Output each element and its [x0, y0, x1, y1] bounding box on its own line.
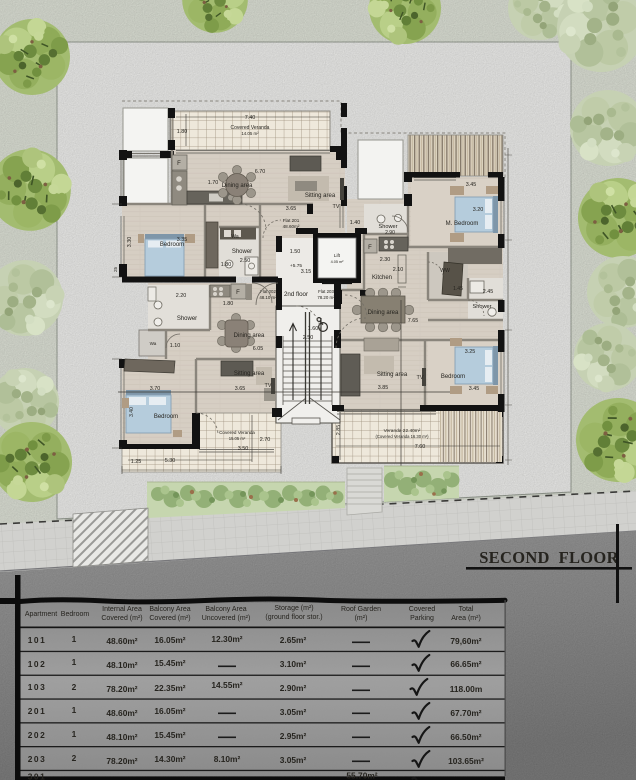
svg-text:1.60: 1.60	[308, 326, 319, 332]
svg-text:7.65: 7.65	[408, 318, 419, 324]
svg-text:6.05: 6.05	[253, 346, 264, 352]
svg-text:1: 1	[72, 657, 77, 667]
svg-text:Parking: Parking	[410, 615, 434, 622]
svg-text:1: 1	[72, 705, 77, 715]
svg-text:202: 202	[28, 730, 46, 740]
svg-text:78.20 m²: 78.20 m²	[317, 295, 335, 300]
svg-text:2: 2	[72, 682, 77, 692]
svg-text:2.70: 2.70	[260, 437, 271, 443]
svg-text:2.85: 2.85	[336, 425, 342, 436]
svg-text:48.10m²: 48.10m²	[106, 660, 137, 670]
svg-text:66.65m²: 66.65m²	[450, 659, 481, 669]
svg-text:203: 203	[28, 754, 46, 764]
svg-text:3.40: 3.40	[129, 407, 135, 417]
svg-text:1.40: 1.40	[350, 220, 361, 226]
svg-text:4.05 m²: 4.05 m²	[331, 260, 345, 264]
svg-text:3.85: 3.85	[378, 385, 389, 391]
svg-text:Shower: Shower	[177, 316, 197, 322]
svg-text:301: 301	[28, 772, 46, 780]
svg-text:66.50m²: 66.50m²	[450, 732, 481, 742]
svg-text:3.05m²: 3.05m²	[280, 707, 307, 717]
svg-text:2.90: 2.90	[385, 230, 395, 236]
svg-text:TV: TV	[417, 375, 424, 381]
svg-text:Dining area: Dining area	[368, 310, 399, 316]
svg-text:22.35m²: 22.35m²	[154, 683, 185, 693]
svg-text:1.80: 1.80	[177, 129, 188, 135]
svg-text:1.80: 1.80	[221, 262, 232, 268]
svg-text:F: F	[368, 245, 372, 251]
svg-text:102: 102	[28, 659, 46, 669]
svg-text:48.10m²: 48.10m²	[106, 732, 137, 742]
svg-text:1: 1	[72, 634, 77, 644]
svg-text:Bedroom: Bedroom	[61, 611, 90, 618]
svg-text:1.80: 1.80	[223, 301, 234, 307]
svg-text:14.55m²: 14.55m²	[211, 680, 242, 690]
svg-text:12.30m²: 12.30m²	[211, 634, 242, 644]
svg-text:14.05 m²: 14.05 m²	[241, 131, 259, 136]
svg-text:1.70: 1.70	[208, 180, 219, 186]
svg-text:Dining area: Dining area	[222, 183, 253, 189]
svg-text:101: 101	[28, 635, 46, 645]
svg-text:3.45: 3.45	[466, 182, 477, 188]
svg-text:Flat 201: Flat 201	[283, 218, 300, 223]
svg-text:2.65m²: 2.65m²	[280, 635, 307, 645]
svg-text:Balcony Area: Balcony Area	[205, 606, 246, 613]
svg-text:Covered (m²): Covered (m²)	[149, 615, 190, 622]
svg-text:F: F	[236, 290, 240, 296]
svg-text:8.10m²: 8.10m²	[214, 754, 241, 764]
svg-text:3.65: 3.65	[286, 206, 297, 212]
svg-text:Dining area: Dining area	[234, 333, 265, 339]
svg-text:2.45: 2.45	[483, 289, 494, 295]
svg-text:3.65: 3.65	[235, 386, 246, 392]
svg-text:78.20m²: 78.20m²	[106, 684, 137, 694]
svg-text:Sitting area: Sitting area	[305, 193, 336, 199]
svg-text:Total: Total	[459, 606, 474, 613]
svg-text:48.60m²: 48.60m²	[106, 708, 137, 718]
svg-text:Covered: Covered	[409, 606, 436, 613]
svg-text:1.45: 1.45	[453, 286, 463, 292]
svg-text:Bedroom: Bedroom	[154, 414, 178, 420]
svg-text:2.30: 2.30	[380, 257, 391, 263]
svg-text:2nd floor: 2nd floor	[284, 291, 308, 298]
svg-text:201: 201	[28, 706, 46, 716]
svg-text:55.70m²: 55.70m²	[346, 771, 377, 780]
svg-text:16.05m²: 16.05m²	[154, 635, 185, 645]
svg-text:Sitting area: Sitting area	[234, 371, 265, 377]
svg-text:F: F	[177, 161, 181, 167]
svg-text:2.50: 2.50	[240, 258, 251, 264]
svg-text:14.30m²: 14.30m²	[154, 754, 185, 764]
svg-text:Uncovered (m²): Uncovered (m²)	[202, 615, 251, 622]
svg-text:5.30: 5.30	[165, 458, 176, 464]
svg-text:TV: TV	[333, 204, 340, 210]
svg-text:Wa: Wa	[150, 341, 157, 346]
svg-text:Flat 203: Flat 203	[318, 289, 334, 294]
svg-text:3.50: 3.50	[238, 446, 249, 452]
svg-text:Bedroom: Bedroom	[441, 374, 465, 380]
svg-text:Apartment: Apartment	[25, 611, 57, 618]
svg-text:48.60m²: 48.60m²	[106, 636, 137, 646]
svg-text:2.95m²: 2.95m²	[280, 731, 307, 741]
svg-text:(Covered Veranda 16.30 m²): (Covered Veranda 16.30 m²)	[375, 434, 429, 439]
svg-text:3.30: 3.30	[127, 237, 133, 248]
svg-text:16.05m²: 16.05m²	[154, 706, 185, 716]
svg-text:Kitchen: Kitchen	[372, 275, 392, 281]
svg-text:Lift: Lift	[334, 253, 341, 258]
svg-text:Covered (m²): Covered (m²)	[101, 615, 142, 622]
svg-text:Internal Area: Internal Area	[102, 606, 142, 613]
svg-text:78.20m²: 78.20m²	[106, 756, 137, 766]
svg-text:Covered Veranda: Covered Veranda	[219, 430, 255, 435]
svg-text:Shower: Shower	[232, 249, 252, 255]
svg-text:103.65m²: 103.65m²	[448, 756, 484, 766]
svg-text:79,60m²: 79,60m²	[450, 636, 481, 646]
svg-text:Wa: Wa	[231, 234, 239, 240]
svg-text:2: 2	[72, 753, 77, 763]
svg-text:2.50: 2.50	[303, 335, 314, 341]
svg-text:3.20: 3.20	[473, 207, 484, 213]
svg-text:15.45m²: 15.45m²	[154, 730, 185, 740]
svg-text:67.70m²: 67.70m²	[450, 708, 481, 718]
svg-text:3.35: 3.35	[177, 237, 188, 243]
svg-text:3.10m²: 3.10m²	[280, 659, 307, 669]
svg-text:TV: TV	[265, 383, 272, 389]
svg-text:SECOND FLOOR: SECOND FLOOR	[479, 548, 619, 567]
svg-text:2.10: 2.10	[393, 267, 404, 273]
svg-text:3.05m²: 3.05m²	[280, 755, 307, 765]
svg-text:48.60m²: 48.60m²	[283, 224, 300, 229]
svg-text:Storage (m²): Storage (m²)	[274, 605, 313, 612]
svg-text:1.50: 1.50	[290, 249, 301, 255]
svg-text:1.10: 1.10	[170, 343, 181, 349]
svg-text:(m²): (m²)	[355, 615, 368, 622]
svg-text:3.70: 3.70	[150, 386, 161, 392]
svg-text:Balcony Area: Balcony Area	[149, 606, 190, 613]
svg-text:2.20: 2.20	[176, 293, 187, 299]
svg-text:3.15: 3.15	[301, 269, 312, 275]
svg-text:Roof Garden: Roof Garden	[341, 606, 381, 613]
svg-text:2.90m²: 2.90m²	[280, 683, 307, 693]
svg-text:15.45m²: 15.45m²	[154, 658, 185, 668]
svg-text:7.60: 7.60	[415, 444, 426, 450]
svg-text:3.25: 3.25	[465, 349, 476, 355]
svg-text:48.10 m²: 48.10 m²	[259, 295, 277, 300]
svg-text:103: 103	[28, 682, 46, 692]
svg-text:25: 25	[113, 266, 118, 272]
svg-text:3.45: 3.45	[469, 386, 480, 392]
svg-text:1: 1	[72, 729, 77, 739]
svg-text:Sitting area: Sitting area	[377, 372, 408, 378]
svg-text:Area (m²): Area (m²)	[451, 615, 481, 622]
svg-text:15.05 m²: 15.05 m²	[229, 436, 246, 441]
svg-text:118.00m: 118.00m	[450, 684, 483, 694]
svg-text:6.70: 6.70	[255, 169, 266, 175]
svg-text:(ground floor stor.): (ground floor stor.)	[265, 614, 322, 621]
svg-text:M. Bedroom: M. Bedroom	[446, 221, 479, 227]
svg-text:7.40: 7.40	[245, 115, 256, 121]
